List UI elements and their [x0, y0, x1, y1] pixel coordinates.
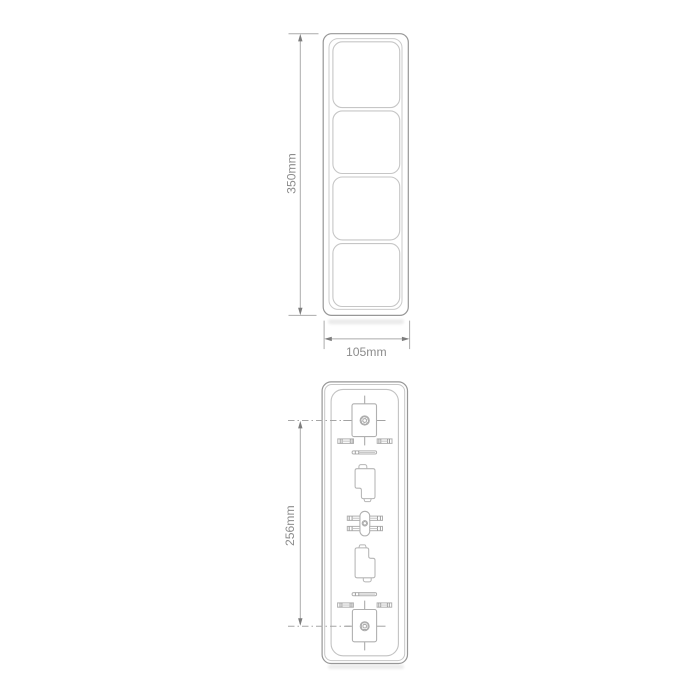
svg-text:350mm: 350mm: [285, 153, 299, 194]
svg-text:256mm: 256mm: [283, 505, 297, 546]
svg-text:105mm: 105mm: [346, 345, 387, 359]
